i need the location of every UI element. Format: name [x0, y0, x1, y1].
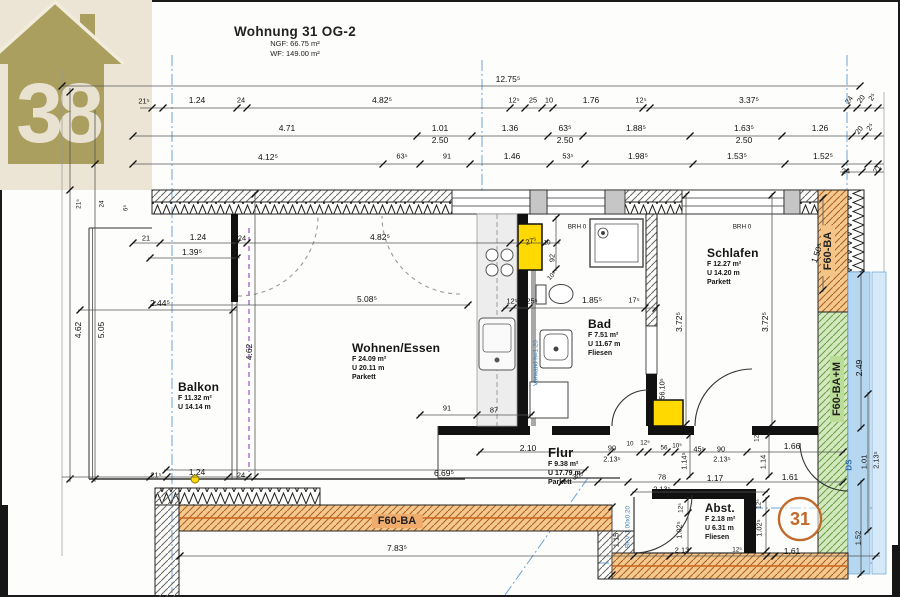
plan-title: Wohnung 31 OG-2	[205, 24, 385, 39]
scan-mark-right	[892, 545, 900, 597]
bathroom-fixtures	[530, 219, 643, 418]
toilet	[549, 285, 573, 304]
schlafen-door-arc	[695, 369, 752, 426]
window	[452, 190, 530, 214]
plan-title-block: Wohnung 31 OG-2 NGF: 66.75 m² WF: 149.00…	[205, 24, 385, 58]
window	[682, 190, 784, 214]
logo-number: 38	[16, 66, 102, 160]
scan-mark-left	[0, 505, 8, 597]
unit-number-badge: 31	[778, 497, 822, 541]
abstellraum-door-arc	[634, 495, 692, 553]
fire-rating-label-right-top: F60-BA	[821, 226, 835, 277]
stairwell-band	[872, 272, 886, 574]
stove-burner	[501, 249, 513, 261]
stove-burner	[486, 264, 498, 276]
plan-linework: 38	[0, 0, 900, 597]
balcony-railing	[89, 214, 238, 479]
fire-rating-label-right-bottom: F60-BA+M	[830, 356, 844, 422]
stove-burner	[486, 249, 498, 261]
exterior-wall-top	[152, 190, 818, 214]
plan-wf-value: WF: 149.00 m²	[205, 49, 385, 59]
bad-door-arc	[612, 390, 648, 426]
marker-dot	[191, 475, 199, 483]
stove-burner	[501, 264, 513, 276]
shower	[590, 219, 643, 267]
washing-machine	[530, 382, 568, 418]
fire-rating-label-bottom: F60-BA	[372, 514, 423, 528]
floorplan-drawing: 38	[0, 0, 900, 597]
balcony-door-arc	[382, 216, 460, 294]
toilet-tank	[536, 285, 546, 304]
balcony-door-arc	[238, 216, 318, 296]
wall-pier	[784, 190, 800, 214]
wall-pier	[530, 190, 547, 214]
plan-ngf-value: NGF: 66.75 m²	[205, 39, 385, 49]
kitchen-fixtures	[477, 214, 517, 426]
stairwell-band	[848, 272, 870, 574]
window	[547, 190, 605, 214]
wall-pier	[605, 190, 625, 214]
